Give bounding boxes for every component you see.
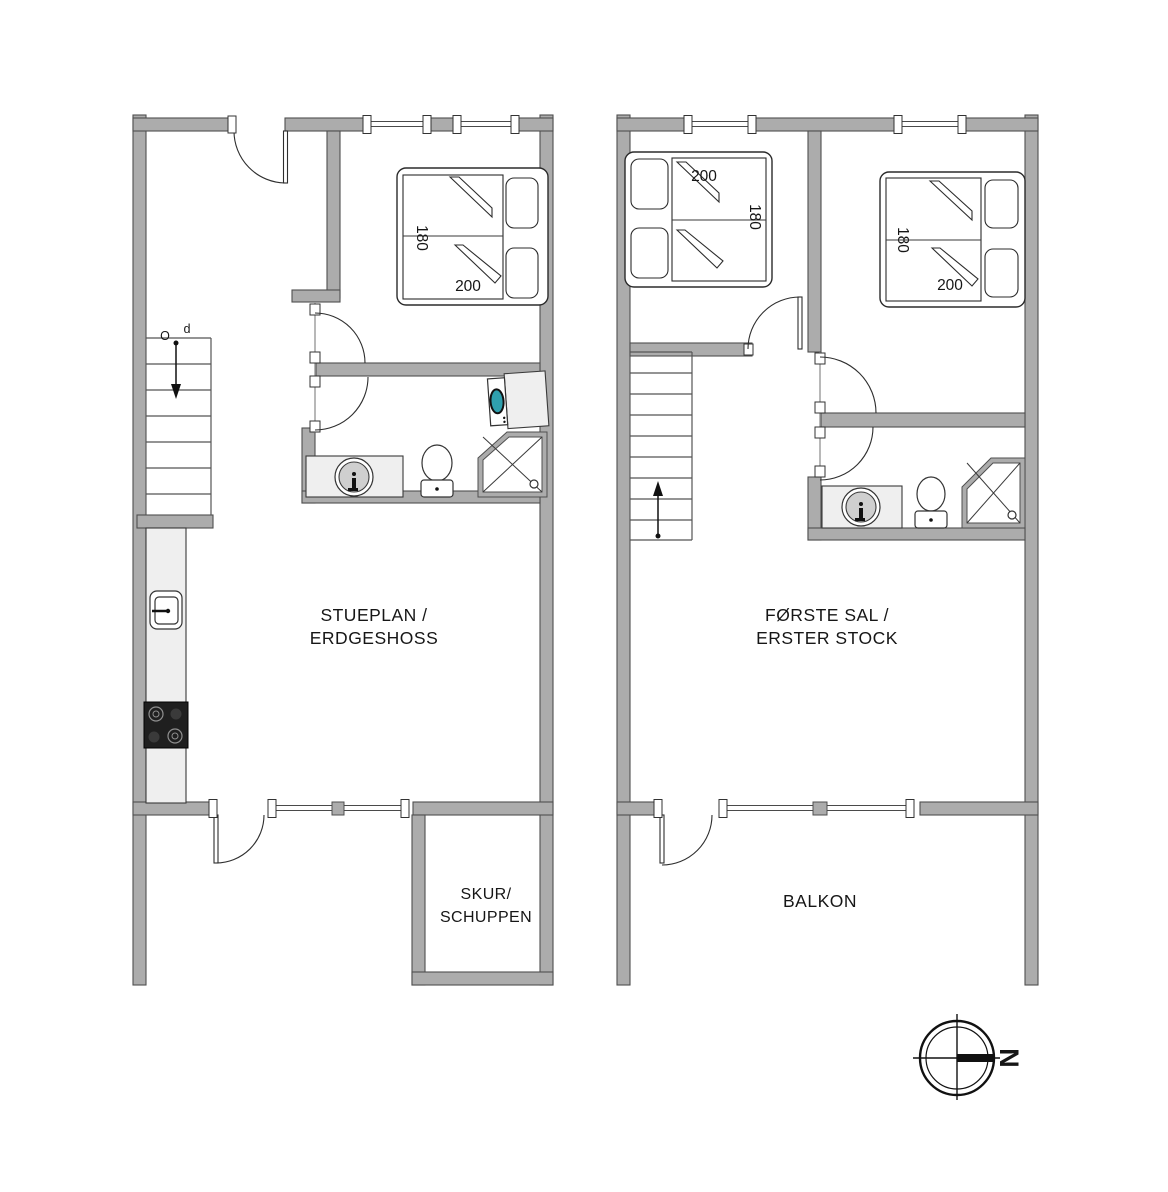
ff-stairs	[630, 352, 692, 540]
gf-window-bottom-2	[344, 800, 409, 818]
gf-bathroom-door	[315, 377, 368, 430]
ff-door-thresholds	[744, 344, 825, 477]
gf-bed-width-label: 180	[413, 225, 430, 251]
stairs-arrow-up	[653, 481, 663, 539]
ff-bed-left-length-label: 200	[691, 168, 717, 185]
gf-room-title-line2: ERDGESHOSS	[310, 628, 439, 648]
stove-icon	[144, 702, 188, 748]
gf-terrace-door	[209, 800, 264, 864]
gf-kitchen	[144, 528, 188, 803]
gf-window-bottom-1	[268, 800, 332, 818]
ff-bed-right-width-label: 180	[894, 227, 911, 253]
kitchen-counter	[146, 528, 186, 803]
ff-bed-left-width-label: 180	[746, 204, 763, 230]
stairs-label-o: O	[160, 329, 170, 343]
ff-room-title-line1: FØRSTE SAL /	[765, 605, 889, 625]
first-floor-plan: 200 180 180 200	[617, 115, 1038, 985]
gf-washing-machine-icon	[487, 371, 549, 430]
ff-bed-right-length-label: 200	[937, 277, 963, 294]
ff-toilet-icon	[915, 477, 947, 528]
gf-bedroom-door	[315, 313, 365, 363]
ff-window-top-1	[684, 116, 756, 134]
gf-room-title-line1: STUEPLAN /	[320, 605, 427, 625]
compass-north-pointer	[957, 1054, 995, 1062]
gf-bed-length-label: 200	[455, 278, 481, 295]
gf-shower-icon	[478, 432, 547, 497]
ff-double-bed-left: 200 180	[625, 152, 772, 287]
gf-entry-door	[228, 116, 288, 183]
gf-bathroom	[306, 371, 549, 497]
gf-window-top-1	[363, 116, 431, 134]
floorplan-canvas: O p 180 200	[0, 0, 1168, 1192]
gf-shed-label-line1: SKUR/	[461, 886, 512, 903]
gf-stairs: O p	[146, 323, 211, 515]
ff-room-title-line2: ERSTER STOCK	[756, 628, 898, 648]
gf-window-top-2	[453, 116, 519, 134]
ff-sink-icon	[842, 488, 880, 526]
compass-rose: N	[913, 1014, 1024, 1100]
stairs-label-p: p	[183, 323, 190, 337]
ff-balcony-door	[654, 800, 712, 866]
gf-double-bed: 180 200	[397, 168, 548, 305]
kitchen-sink-icon	[150, 591, 182, 629]
compass-north-label: N	[994, 1048, 1024, 1068]
ff-bedroom-right-door	[820, 357, 876, 413]
ff-window-bottom-2	[827, 800, 914, 818]
ff-double-bed-right: 180 200	[880, 172, 1025, 307]
ff-bathroom-door	[820, 427, 873, 480]
gf-sink-icon	[335, 458, 373, 496]
gf-toilet-icon	[421, 445, 453, 497]
ff-bedroom-left-door	[748, 297, 802, 349]
ff-balcony-label: BALKON	[783, 891, 857, 911]
ff-window-bottom-1	[719, 800, 813, 818]
ground-floor-plan: O p 180 200	[133, 115, 553, 985]
ff-shower-icon	[962, 458, 1025, 528]
ff-window-top-2	[894, 116, 966, 134]
gf-shed-label-line2: SCHUPPEN	[440, 909, 532, 926]
